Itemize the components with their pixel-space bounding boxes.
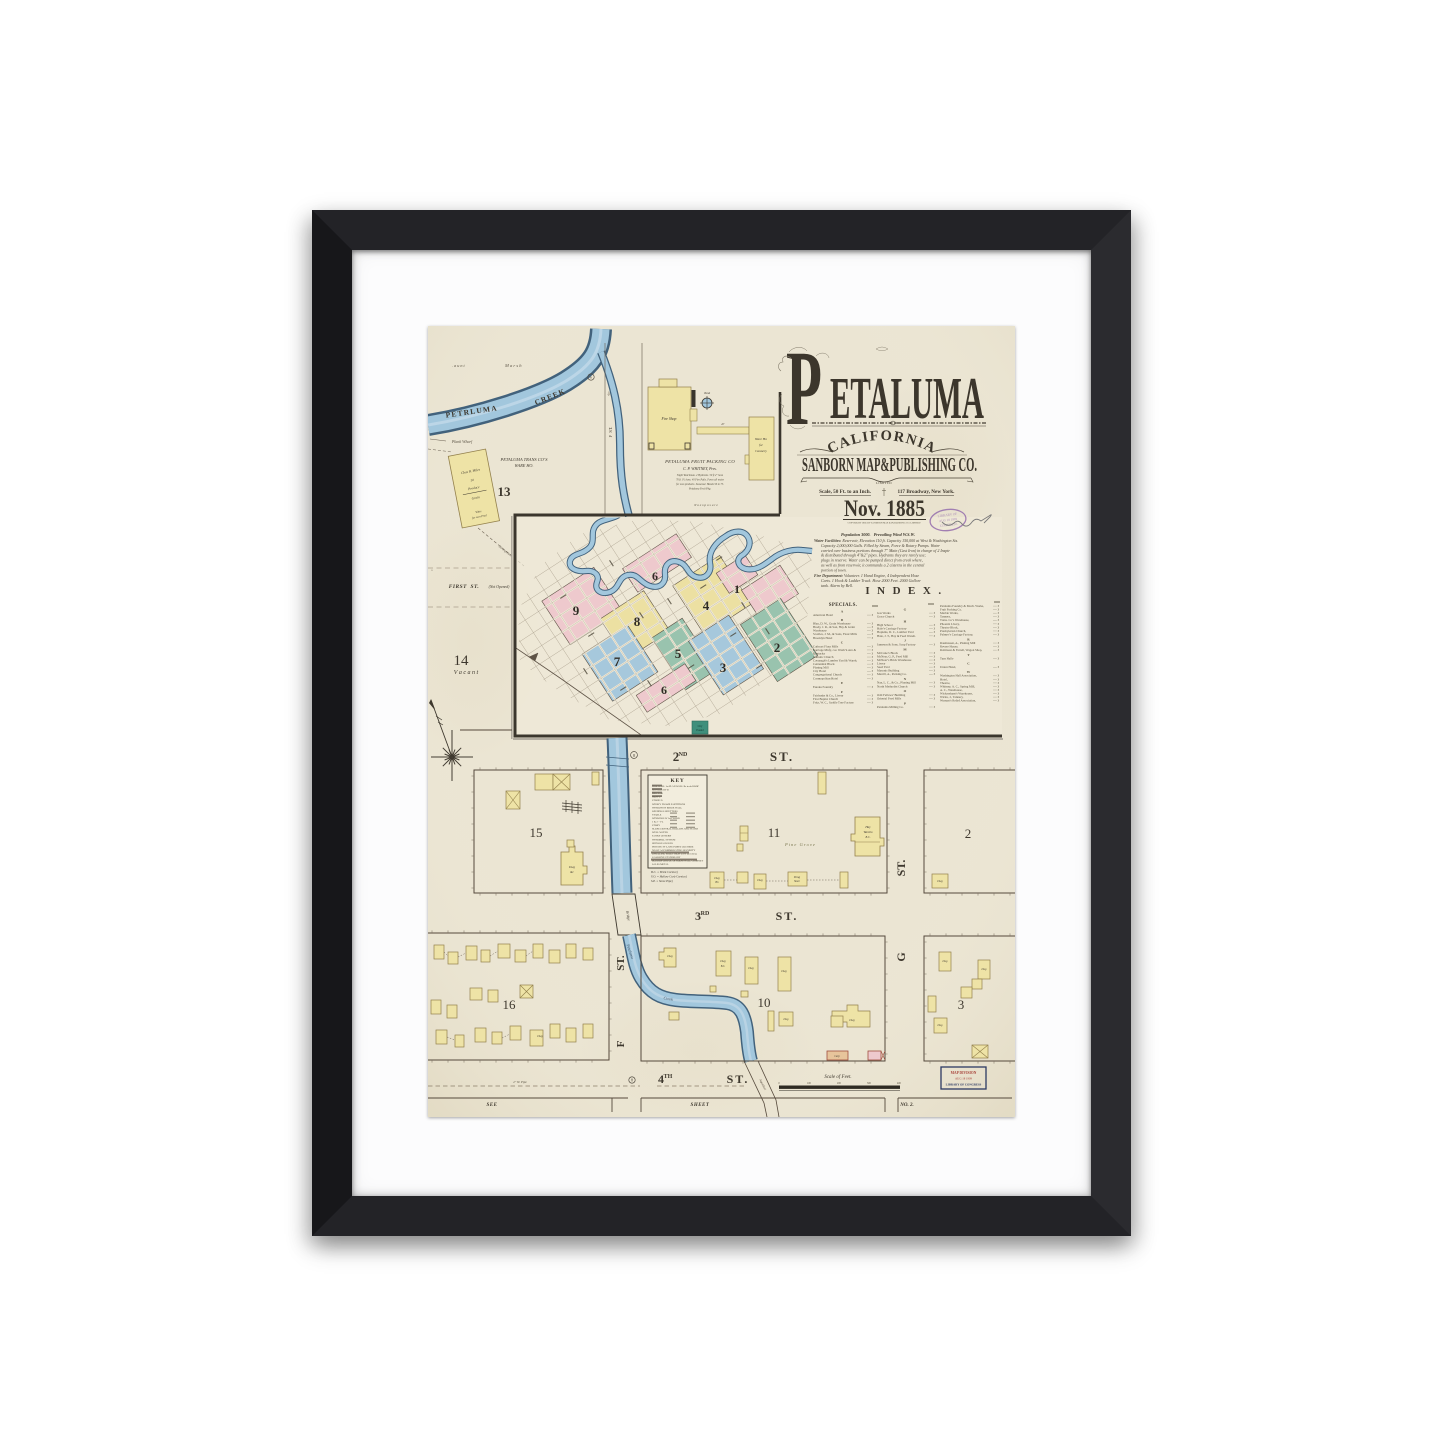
svg-text:NO. 2.: NO. 2. [899, 1103, 913, 1108]
svg-text:SLOPE CENTRAL HOLLOW AND STAIR: SLOPE CENTRAL HOLLOW AND STAIRS [652, 828, 699, 831]
svg-text:SHEET: SHEET [691, 1103, 710, 1108]
svg-text:Grace Church: Grace Church [877, 615, 895, 619]
svg-text:STORY: STORY [652, 824, 660, 827]
svg-text:P i n e G r o v e: P i n e G r o v e [784, 842, 815, 847]
svg-text:11: 11 [768, 825, 781, 840]
svg-text:9: 9 [573, 603, 580, 618]
svg-text:Ho: Ho [714, 881, 719, 884]
svg-text:2: 2 [965, 826, 972, 841]
svg-text:16: 16 [503, 997, 517, 1012]
svg-text:P: P [786, 329, 822, 448]
svg-text:FIRST ST.: FIRST ST. [449, 584, 479, 590]
svg-text:ST.: ST. [770, 749, 794, 764]
svg-text:PETALUMA FRUIT PACKING CO: PETALUMA FRUIT PACKING CO [664, 459, 735, 464]
svg-text:Wareho: Wareho [863, 830, 873, 834]
svg-text:Cosmopolitan Hotel: Cosmopolitan Hotel [813, 676, 838, 680]
svg-text:Scale of Feet.: Scale of Feet. [824, 1075, 851, 1080]
svg-text:M a r s h: M a r s h [504, 363, 522, 368]
svg-text:Dwg: Dwg [942, 960, 949, 963]
svg-text:ST.: ST. [776, 909, 799, 923]
svg-text:INDEX.: INDEX. [865, 585, 948, 597]
svg-text:8: 8 [631, 1079, 633, 1083]
svg-text:V.O. = Hollow Curb Cornice): V.O. = Hollow Curb Cornice) [651, 875, 687, 879]
svg-text:PRIVATE ST LANE PORTE COCHERE: PRIVATE ST LANE PORTE COCHERE [652, 845, 694, 848]
svg-text:KEY: KEY [670, 778, 684, 784]
svg-text:6: 6 [661, 683, 667, 697]
svg-text:V a c a n t: V a c a n t [454, 670, 479, 676]
svg-text:Store: Store [794, 880, 801, 883]
svg-text:Nov. 1885: Nov. 1885 [844, 496, 925, 521]
svg-text:8: 8 [634, 614, 641, 629]
svg-text:Petaluma Fruit Pkg.: Petaluma Fruit Pkg. [688, 488, 711, 491]
svg-text:LIBRARY OF CONGRESS: LIBRARY OF CONGRESS [946, 1083, 982, 1087]
svg-text:Turn Halle: Turn Halle [940, 657, 954, 661]
svg-text:(Not Opened): (Not Opened) [489, 585, 511, 589]
svg-text:Dwg: Dwg [713, 877, 720, 880]
svg-text:WINDOWS W 1st FLOOR: WINDOWS W 1st FLOOR [652, 817, 680, 820]
svg-text:70 ft 1½ hose. 40 Fire Pails.: 70 ft 1½ hose. 40 Fire Pails. Force all … [676, 479, 725, 482]
svg-text:TH: TH [664, 1074, 673, 1080]
svg-text:Dwg: Dwg [747, 967, 754, 970]
svg-text:Ware Ho: Ware Ho [755, 437, 767, 441]
svg-text:2″ W. Pipe: 2″ W. Pipe [513, 1080, 527, 1084]
svg-text:6: 6 [652, 569, 658, 583]
svg-text:SHINGLE GRAVEL: SHINGLE GRAVEL [652, 842, 674, 845]
svg-text:Dwg: Dwg [780, 970, 787, 973]
svg-text:NO OF ACCOMMODATING SECURITY: NO OF ACCOMMODATING SECURITY [652, 849, 695, 852]
svg-text:ST.: ST. [615, 955, 627, 971]
svg-text:GASOLINE STATIONARY: GASOLINE STATIONARY [652, 856, 681, 859]
svg-text:F: F [615, 1040, 627, 1047]
svg-text:10: 10 [758, 995, 771, 1010]
svg-text:OPENINGS SHUTTERS: OPENINGS SHUTTERS [652, 810, 678, 813]
svg-text:B.C.: B.C. [721, 965, 726, 968]
svg-text:WELL WATER: WELL WATER [652, 831, 668, 834]
svg-text:Dwg: Dwg [536, 1035, 543, 1038]
svg-text:SPECIALS.: SPECIALS. [829, 603, 858, 608]
svg-text:Dwg: Dwg [783, 1018, 790, 1021]
svg-text:City: City [698, 725, 703, 728]
svg-text:1: 1 [734, 582, 740, 596]
svg-text:RD: RD [701, 911, 710, 917]
svg-text:AUG 18 1909: AUG 18 1909 [955, 1077, 972, 1081]
svg-text:F ST.: F ST. [608, 427, 613, 438]
svg-text:Dwg: Dwg [937, 1024, 944, 1027]
svg-text:14: 14 [454, 653, 470, 669]
svg-text:H: H [904, 620, 907, 624]
svg-text:Dwg: Dwg [719, 960, 726, 963]
svg-text:Petaluma Milling Co.: Petaluma Milling Co. [877, 705, 904, 709]
svg-text:Dwg: Dwg [848, 1019, 855, 1022]
svg-text:Dwg: Dwg [568, 865, 575, 869]
svg-text:G: G [894, 952, 908, 961]
svg-text:Dwg: Dwg [756, 879, 763, 882]
svg-text:Cannery: Cannery [755, 449, 767, 453]
svg-text:6: 6 [590, 376, 592, 380]
svg-text:Night Watchman. 2 Hydrants. 5: Night Watchman. 2 Hydrants. 50 ft 2″ hos… [676, 474, 724, 477]
svg-text:Brooklyn Hotel: Brooklyn Hotel [813, 636, 832, 640]
svg-text:WHSKY FRAME PARTITIONS: WHSKY FRAME PARTITIONS [652, 803, 686, 806]
svg-text:ST.: ST. [894, 860, 908, 877]
svg-text:2: 2 [774, 640, 781, 655]
svg-text:Carp: Carp [834, 1055, 840, 1058]
svg-text:SALES METAL: SALES METAL [652, 863, 669, 866]
svg-text:3: 3 [958, 997, 965, 1012]
svg-text:Dwg: Dwg [666, 955, 673, 958]
svg-text:4: 4 [703, 598, 710, 613]
svg-text:American Hotel: American Hotel [813, 613, 833, 617]
svg-text:7: 7 [614, 654, 621, 669]
svg-text:North Methodist Church: North Methodist Church [877, 684, 908, 688]
svg-text:Plank Wharf: Plank Wharf [451, 439, 473, 444]
svg-text:B.C. = Brick Cornice): B.C. = Brick Cornice) [651, 870, 678, 874]
svg-text:Dwg: Dwg [981, 968, 988, 971]
svg-text:ST.: ST. [727, 1072, 750, 1086]
svg-text:40’: 40’ [721, 422, 725, 426]
svg-text:B.C.: B.C. [866, 836, 871, 839]
svg-text:Population 3000. Prevailing: Population 3000. Prevailing Wind W.S.W. [841, 532, 915, 537]
svg-text:MAP DIVISION: MAP DIVISION [951, 1071, 977, 1075]
svg-text:PETALUMA TRANS CO’S: PETALUMA TRANS CO’S [500, 457, 549, 462]
svg-text:Eureka Foundry: Eureka Foundry [813, 685, 833, 689]
svg-text:Fire Shop: Fire Shop [661, 417, 677, 421]
svg-text:portion of town.: portion of town. [820, 567, 847, 572]
svg-text:N o e x p o s u r e: N o e x p o s u r e [693, 503, 718, 507]
svg-text:15: 15 [530, 825, 543, 840]
svg-text:COPYRIGHT 1885 BY SANBORN MAP: COPYRIGHT 1885 BY SANBORN MAP & PUBLISHI… [848, 522, 921, 525]
svg-text:Hay: Hay [864, 825, 871, 829]
svg-text:tank. Alarm by Bell.: tank. Alarm by Bell. [821, 583, 853, 588]
svg-text:1 & 2 = FL: 1 & 2 = FL [652, 821, 664, 824]
svg-text:STONE D: STONE D [652, 799, 663, 802]
svg-text:WARE HO.: WARE HO. [514, 463, 533, 468]
svg-text:Tank: Tank [704, 391, 711, 395]
svg-text:ETALUMA: ETALUMA [830, 367, 984, 432]
svg-text:WINDOW IN BRICK WALL: WINDOW IN BRICK WALL [652, 806, 682, 809]
svg-text:Scale, 50 Ft. to an Inch.: Scale, 50 Ft. to an Inch. [819, 489, 872, 495]
svg-text:8: 8 [633, 753, 635, 758]
svg-text:S.P. = Stove Pipe): S.P. = Stove Pipe) [651, 879, 673, 883]
svg-text:Dwg: Dwg [936, 880, 943, 883]
svg-text:for own products. Seasonal. H: for own products. Seasonal. Hands 50 to … [676, 483, 724, 486]
svg-text:LIMITED: LIMITED [876, 481, 892, 485]
svg-text:STABLE: STABLE [652, 813, 662, 816]
svg-text:. a u n t: . a u n t [452, 363, 466, 368]
svg-text:Oriental Feed Mills: Oriental Feed Mills [877, 696, 902, 700]
svg-text:SEE: SEE [487, 1103, 498, 1108]
svg-text:WINDMILL SYSTEM: WINDMILL SYSTEM [652, 838, 676, 841]
svg-text:5: 5 [675, 646, 682, 661]
svg-text:G: G [904, 607, 907, 611]
svg-text:3: 3 [720, 660, 727, 675]
svg-text:P: P [904, 701, 906, 705]
svg-text:Pound: Pound [696, 729, 704, 732]
svg-text:TANKS CISTERN: TANKS CISTERN [652, 835, 671, 838]
svg-text:117 Broadway, New York.: 117 Broadway, New York. [898, 489, 956, 495]
svg-text:13: 13 [498, 484, 512, 499]
svg-text:Drug: Drug [793, 875, 801, 879]
svg-text:SANBORN MAP&PUBLISHING CO.: SANBORN MAP&PUBLISHING CO. [802, 454, 977, 476]
svg-text:ND: ND [679, 752, 688, 758]
